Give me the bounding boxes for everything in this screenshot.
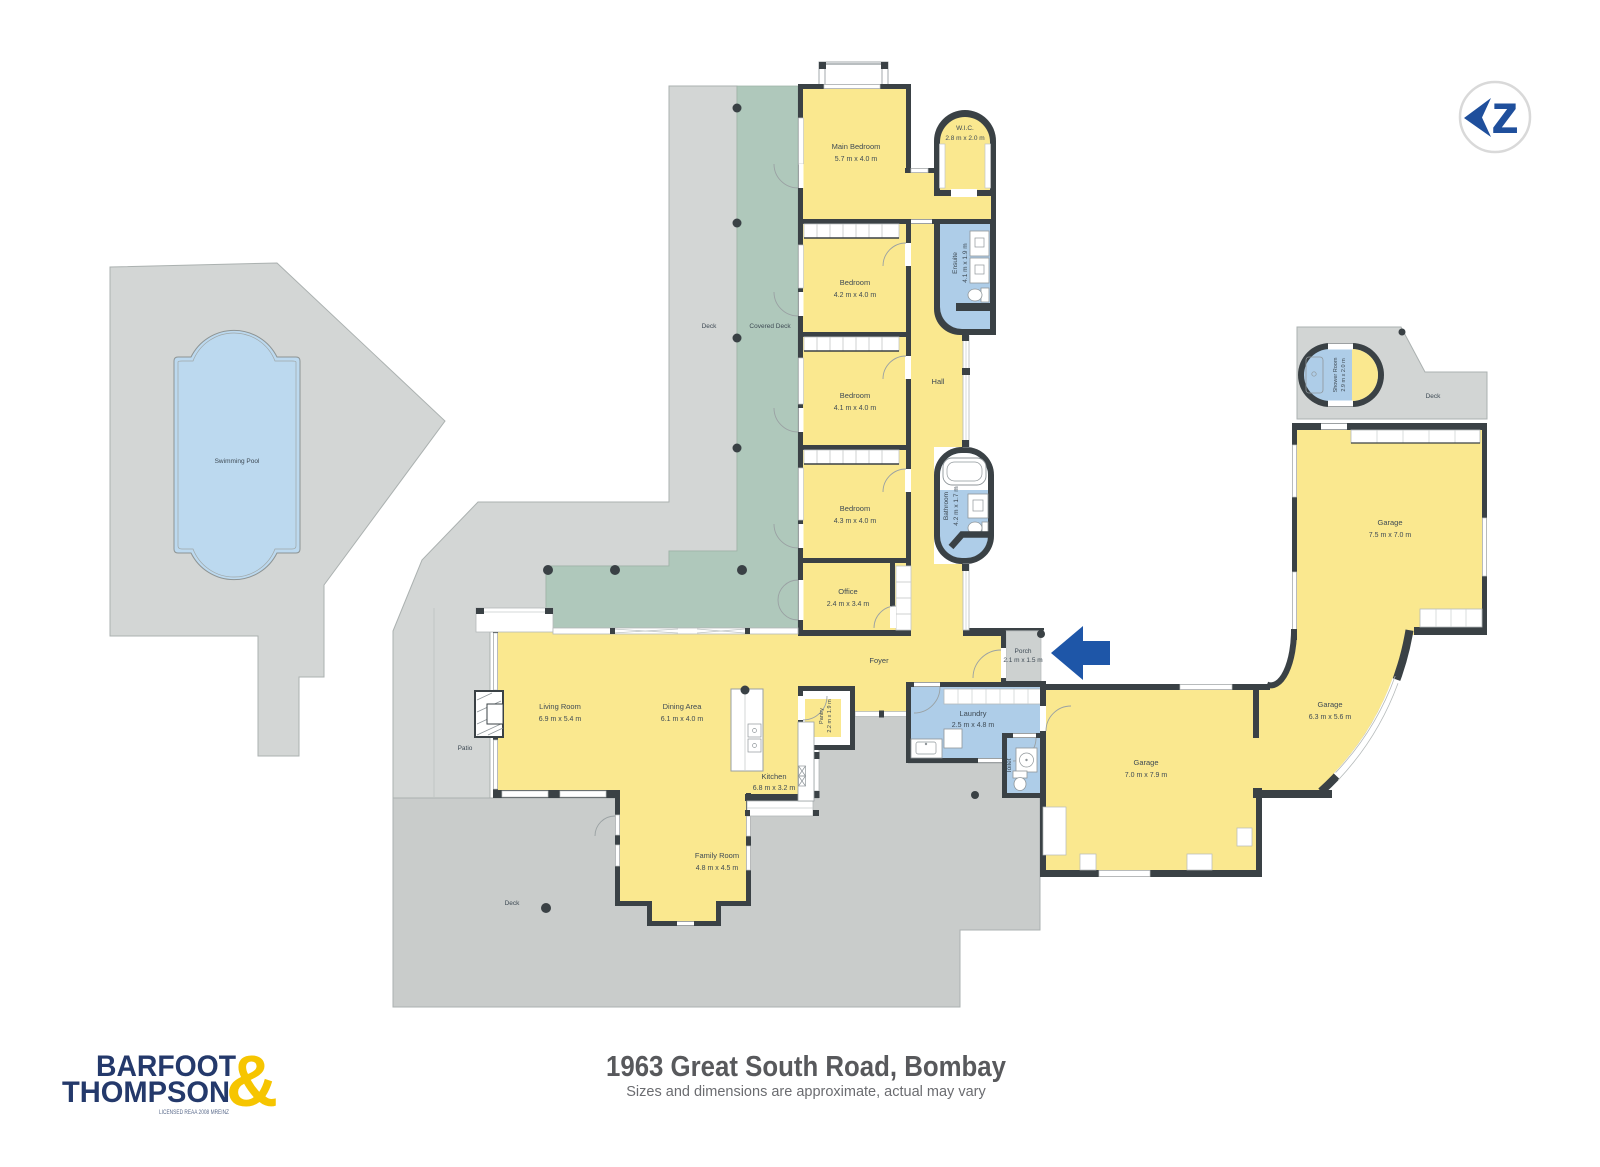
- svg-text:Laundry: Laundry: [959, 709, 986, 718]
- svg-text:Pantry: Pantry: [819, 708, 825, 724]
- svg-text:Covered Deck: Covered Deck: [749, 323, 791, 330]
- svg-text:5.7 m x 4.0 m: 5.7 m x 4.0 m: [835, 156, 878, 163]
- svg-text:Main Bedroom: Main Bedroom: [832, 142, 881, 151]
- svg-text:4.1 m x 1.9 m: 4.1 m x 1.9 m: [962, 243, 969, 282]
- svg-text:7.0 m x 7.9 m: 7.0 m x 7.9 m: [1125, 772, 1168, 779]
- svg-text:Bedroom: Bedroom: [840, 391, 870, 400]
- svg-text:Deck: Deck: [702, 323, 718, 330]
- svg-text:LICENSED REAA 2008 MREINZ: LICENSED REAA 2008 MREINZ: [159, 1110, 229, 1116]
- svg-text:2.4 m x 3.4 m: 2.4 m x 3.4 m: [827, 601, 870, 608]
- svg-text:&: &: [226, 1042, 278, 1122]
- svg-text:6.9 m x 5.4 m: 6.9 m x 5.4 m: [539, 716, 582, 723]
- svg-text:2.9 m x 2.0 m: 2.9 m x 2.0 m: [1341, 358, 1347, 392]
- svg-text:Bathroom: Bathroom: [943, 492, 950, 520]
- svg-text:6.3 m x 5.6 m: 6.3 m x 5.6 m: [1309, 714, 1352, 721]
- svg-text:THOMPSON: THOMPSON: [62, 1076, 230, 1109]
- svg-text:2.1 m x 1.5 m: 2.1 m x 1.5 m: [1003, 657, 1042, 664]
- svg-text:Bedroom: Bedroom: [840, 504, 870, 513]
- svg-text:Ensuite: Ensuite: [952, 252, 959, 274]
- svg-text:z: z: [1491, 82, 1519, 145]
- svg-text:2.5 m x 4.8 m: 2.5 m x 4.8 m: [952, 722, 995, 729]
- svg-text:Porch: Porch: [1015, 648, 1032, 655]
- svg-text:Family Room: Family Room: [695, 851, 739, 860]
- svg-text:Swimming Pool: Swimming Pool: [215, 458, 260, 465]
- svg-text:2.2 m x 1.9 m: 2.2 m x 1.9 m: [827, 699, 833, 733]
- svg-text:Dining Area: Dining Area: [663, 702, 703, 711]
- svg-text:Patio: Patio: [458, 745, 473, 752]
- svg-text:Foyer: Foyer: [869, 656, 889, 665]
- svg-text:4.8 m x 4.5 m: 4.8 m x 4.5 m: [696, 865, 739, 872]
- svg-text:Hall: Hall: [932, 377, 945, 386]
- svg-text:Toilet: Toilet: [1006, 758, 1013, 773]
- svg-text:Bedroom: Bedroom: [840, 278, 870, 287]
- svg-text:Deck: Deck: [1426, 393, 1442, 400]
- svg-text:W.I.C.: W.I.C.: [956, 125, 974, 132]
- svg-text:4.3 m x 4.0 m: 4.3 m x 4.0 m: [834, 518, 877, 525]
- svg-text:1963 Great South Road, Bombay: 1963 Great South Road, Bombay: [606, 1051, 1006, 1083]
- svg-text:7.5 m x 7.0 m: 7.5 m x 7.0 m: [1369, 532, 1412, 539]
- svg-text:Kitchen: Kitchen: [761, 772, 786, 781]
- svg-text:4.1 m x 4.0 m: 4.1 m x 4.0 m: [834, 405, 877, 412]
- svg-text:4.2 m x 1.7 m: 4.2 m x 1.7 m: [953, 486, 960, 525]
- svg-text:6.8 m x 3.2 m: 6.8 m x 3.2 m: [753, 785, 796, 792]
- svg-text:4.2 m x 4.0 m: 4.2 m x 4.0 m: [834, 292, 877, 299]
- svg-text:2.8 m x 2.0 m: 2.8 m x 2.0 m: [945, 135, 984, 142]
- svg-text:Living Room: Living Room: [539, 702, 581, 711]
- svg-text:Garage: Garage: [1133, 758, 1158, 767]
- svg-text:Garage: Garage: [1377, 518, 1402, 527]
- svg-text:Office: Office: [838, 587, 857, 596]
- svg-text:6.1 m x 4.0 m: 6.1 m x 4.0 m: [661, 716, 704, 723]
- svg-text:Deck: Deck: [505, 900, 521, 907]
- svg-text:Shower Room: Shower Room: [1333, 357, 1339, 392]
- svg-text:Sizes and dimensions are appro: Sizes and dimensions are approximate, ac…: [626, 1084, 986, 1100]
- svg-text:Garage: Garage: [1317, 700, 1342, 709]
